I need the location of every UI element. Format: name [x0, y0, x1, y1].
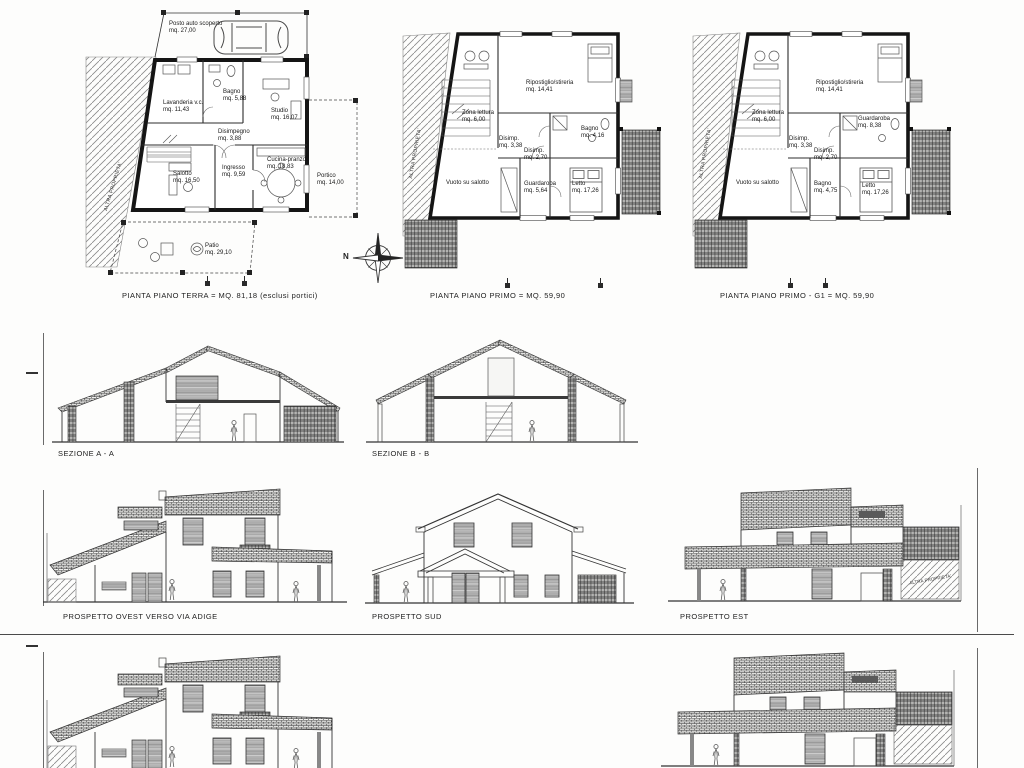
room-area: mq. 9,59 — [222, 172, 245, 179]
room-area: mq. 14,41 — [816, 87, 863, 94]
room-label-bagno: Bagnomq. 4,16 — [581, 126, 604, 139]
sezione-a-a — [48, 330, 348, 448]
prospetto-ovest-repeat — [40, 652, 350, 768]
building-section-icon — [366, 340, 638, 442]
room-area: mq. 17,26 — [572, 188, 599, 195]
architectural-drawing-sheet: Posto auto scopertomq. 27,00 Lavanderia … — [0, 0, 1024, 768]
room-area: mq. 16,50 — [173, 178, 200, 185]
plan-piano-primo-g1: Zona letturamq. 6,00 Ripostiglio/stireri… — [690, 18, 955, 283]
prospetto-sud — [362, 487, 637, 609]
room-name: Lavanderia v.c. — [163, 100, 203, 107]
room-area: mq. 29,10 — [205, 250, 232, 257]
section-cut-marker — [242, 281, 247, 286]
dimension-line — [43, 333, 44, 445]
floor-plan-icon — [86, 10, 358, 275]
compass-rose-icon — [353, 233, 403, 283]
room-label-letto: Lettomq. 17,26 — [862, 183, 889, 196]
room-label-disimp-2: Disimp.mq. 2,70 — [524, 148, 547, 161]
plan-piano-terra: Posto auto scopertomq. 27,00 Lavanderia … — [85, 5, 375, 290]
room-name: Disimp. — [789, 136, 812, 143]
room-area: mq. 2,70 — [814, 155, 837, 162]
room-area: mq. 2,70 — [524, 155, 547, 162]
prospetto-est-drawing — [658, 650, 958, 768]
boundary-line — [977, 468, 978, 632]
room-area: mq. 14,00 — [317, 180, 344, 187]
section-cut-marker — [205, 281, 210, 286]
room-label-ingresso: Ingressomq. 9,59 — [222, 165, 245, 178]
section-cut-marker — [598, 283, 603, 288]
room-label-studio: Studiomq. 16,07 — [271, 108, 298, 121]
room-name: Bagno — [581, 126, 604, 133]
room-area: mq. 14,41 — [526, 87, 573, 94]
room-area: mq. 8,38 — [858, 123, 890, 130]
room-area: mq. 5,64 — [524, 188, 556, 195]
room-area: mq. 16,07 — [271, 115, 298, 122]
room-name: Ingresso — [222, 165, 245, 172]
prospetto-ovest — [40, 485, 350, 611]
room-name: Ripostiglio/stireria — [526, 80, 573, 87]
sezione-a-caption: SEZIONE A - A — [58, 449, 114, 458]
room-area: mq. 6,00 — [752, 117, 784, 124]
boundary-line — [977, 648, 978, 768]
room-area: mq. 27,00 — [169, 28, 222, 35]
section-cut-marker — [823, 283, 828, 288]
room-label-bagno: Bagnomq. 5,88 — [223, 89, 246, 102]
plan-terra-caption: PIANTA PIANO TERRA = MQ. 81,18 (esclusi … — [122, 291, 318, 300]
prospetto-sud-drawing — [362, 487, 637, 609]
room-area: mq. 4,75 — [814, 188, 837, 195]
sezione-a-a-drawing — [48, 330, 348, 448]
compass-rose-icon — [345, 230, 407, 286]
room-area: mq. 6,00 — [462, 117, 494, 124]
room-name: Bagno — [814, 181, 837, 188]
plan-primo-g1-caption: PIANTA PIANO PRIMO - G1 = MQ. 59,90 — [720, 291, 874, 300]
room-name: Disimpegno — [218, 129, 250, 136]
room-label-vuoto: Vuoto su salotto — [736, 180, 779, 187]
room-name: Salotto — [173, 171, 200, 178]
building-elevation-icon — [365, 494, 634, 603]
room-name: Disimp. — [524, 148, 547, 155]
room-area: mq. 17,26 — [862, 190, 889, 197]
plan-primo-caption: PIANTA PIANO PRIMO = MQ. 59,90 — [430, 291, 565, 300]
building-elevation-icon — [43, 656, 347, 768]
room-area: mq. 11,43 — [163, 107, 203, 114]
room-label-disimp-1: Disimp.mq. 3,38 — [499, 136, 522, 149]
room-name: Zona lettura — [462, 110, 494, 117]
prospetto-est-repeat — [658, 650, 958, 768]
room-name: Bagno — [223, 89, 246, 96]
room-label-disimp-2: Disimp.mq. 2,70 — [814, 148, 837, 161]
room-name: Ripostiglio/stireria — [816, 80, 863, 87]
room-label-zona-lettura: Zona letturamq. 6,00 — [462, 110, 494, 123]
section-cut-marker — [788, 283, 793, 288]
room-area: mq. 3,88 — [218, 136, 250, 143]
room-name: Guardaroba — [858, 116, 890, 123]
room-name: Vuoto su salotto — [736, 180, 779, 187]
north-label: N — [343, 252, 349, 261]
building-section-icon — [52, 346, 344, 442]
prospetto-est-caption: PROSPETTO EST — [680, 612, 749, 621]
room-label-bagno: Bagnomq. 4,75 — [814, 181, 837, 194]
building-elevation-icon — [43, 489, 347, 602]
room-label-posto-auto: Posto auto scopertomq. 27,00 — [169, 21, 222, 34]
sezione-b-caption: SEZIONE B - B — [372, 449, 430, 458]
prospetto-est-drawing — [665, 485, 965, 611]
room-label-salotto: Salottomq. 16,50 — [173, 171, 200, 184]
room-label-ripostiglio: Ripostiglio/stireriamq. 14,41 — [816, 80, 863, 93]
room-label-disimp-1: Disimp.mq. 3,38 — [789, 136, 812, 149]
room-name: Guardaroba — [524, 181, 556, 188]
sheet-divider-line — [0, 634, 1014, 635]
room-label-letto: Lettomq. 17,26 — [572, 181, 599, 194]
room-name: Disimp. — [499, 136, 522, 143]
room-name: Zona lettura — [752, 110, 784, 117]
building-elevation-icon — [661, 653, 954, 766]
room-label-lavanderia: Lavanderia v.c.mq. 11,43 — [163, 100, 203, 113]
room-name: Cucina-pranzo — [267, 157, 306, 164]
sezione-b-b — [362, 330, 642, 448]
room-label-vuoto: Vuoto su salotto — [446, 180, 489, 187]
sezione-b-b-drawing — [362, 330, 642, 448]
room-label-patio: Patiomq. 29,10 — [205, 243, 232, 256]
room-label-disimpegno: Disimpegnomq. 3,88 — [218, 129, 250, 142]
room-area: mq. 3,38 — [499, 143, 522, 150]
room-name: Vuoto su salotto — [446, 180, 489, 187]
room-name: Studio — [271, 108, 298, 115]
room-name: Letto — [572, 181, 599, 188]
room-area: mq. 4,16 — [581, 133, 604, 140]
room-label-guardaroba: Guardarobamq. 5,64 — [524, 181, 556, 194]
room-label-ripostiglio: Ripostiglio/stireriamq. 14,41 — [526, 80, 573, 93]
prospetto-sud-caption: PROSPETTO SUD — [372, 612, 442, 621]
section-cut-marker — [505, 283, 510, 288]
room-name: Patio — [205, 243, 232, 250]
margin-tick — [26, 645, 38, 647]
prospetto-ovest-caption: PROSPETTO OVEST VERSO VIA ADIGE — [63, 612, 218, 621]
room-name: Letto — [862, 183, 889, 190]
compass-rose: N — [345, 230, 407, 286]
room-label-guardaroba: Guardarobamq. 8,38 — [858, 116, 890, 129]
room-label-zona-lettura: Zona letturamq. 6,00 — [752, 110, 784, 123]
room-area: mq. 5,88 — [223, 96, 246, 103]
room-label-portico: Porticomq. 14,00 — [317, 173, 344, 186]
margin-tick — [26, 372, 38, 374]
prospetto-ovest-drawing — [40, 652, 350, 768]
plan-piano-primo: Zona letturamq. 6,00 Ripostiglio/stireri… — [400, 18, 665, 283]
room-area: mq. 3,38 — [789, 143, 812, 150]
room-name: Portico — [317, 173, 344, 180]
prospetto-est: ALTRA PROPRIETA' — [665, 485, 965, 611]
room-area: mq. 18,83 — [267, 164, 306, 171]
prospetto-ovest-drawing — [40, 485, 350, 611]
room-label-cucina: Cucina-pranzomq. 18,83 — [267, 157, 306, 170]
room-name: Disimp. — [814, 148, 837, 155]
room-name: Posto auto scoperto — [169, 21, 222, 28]
